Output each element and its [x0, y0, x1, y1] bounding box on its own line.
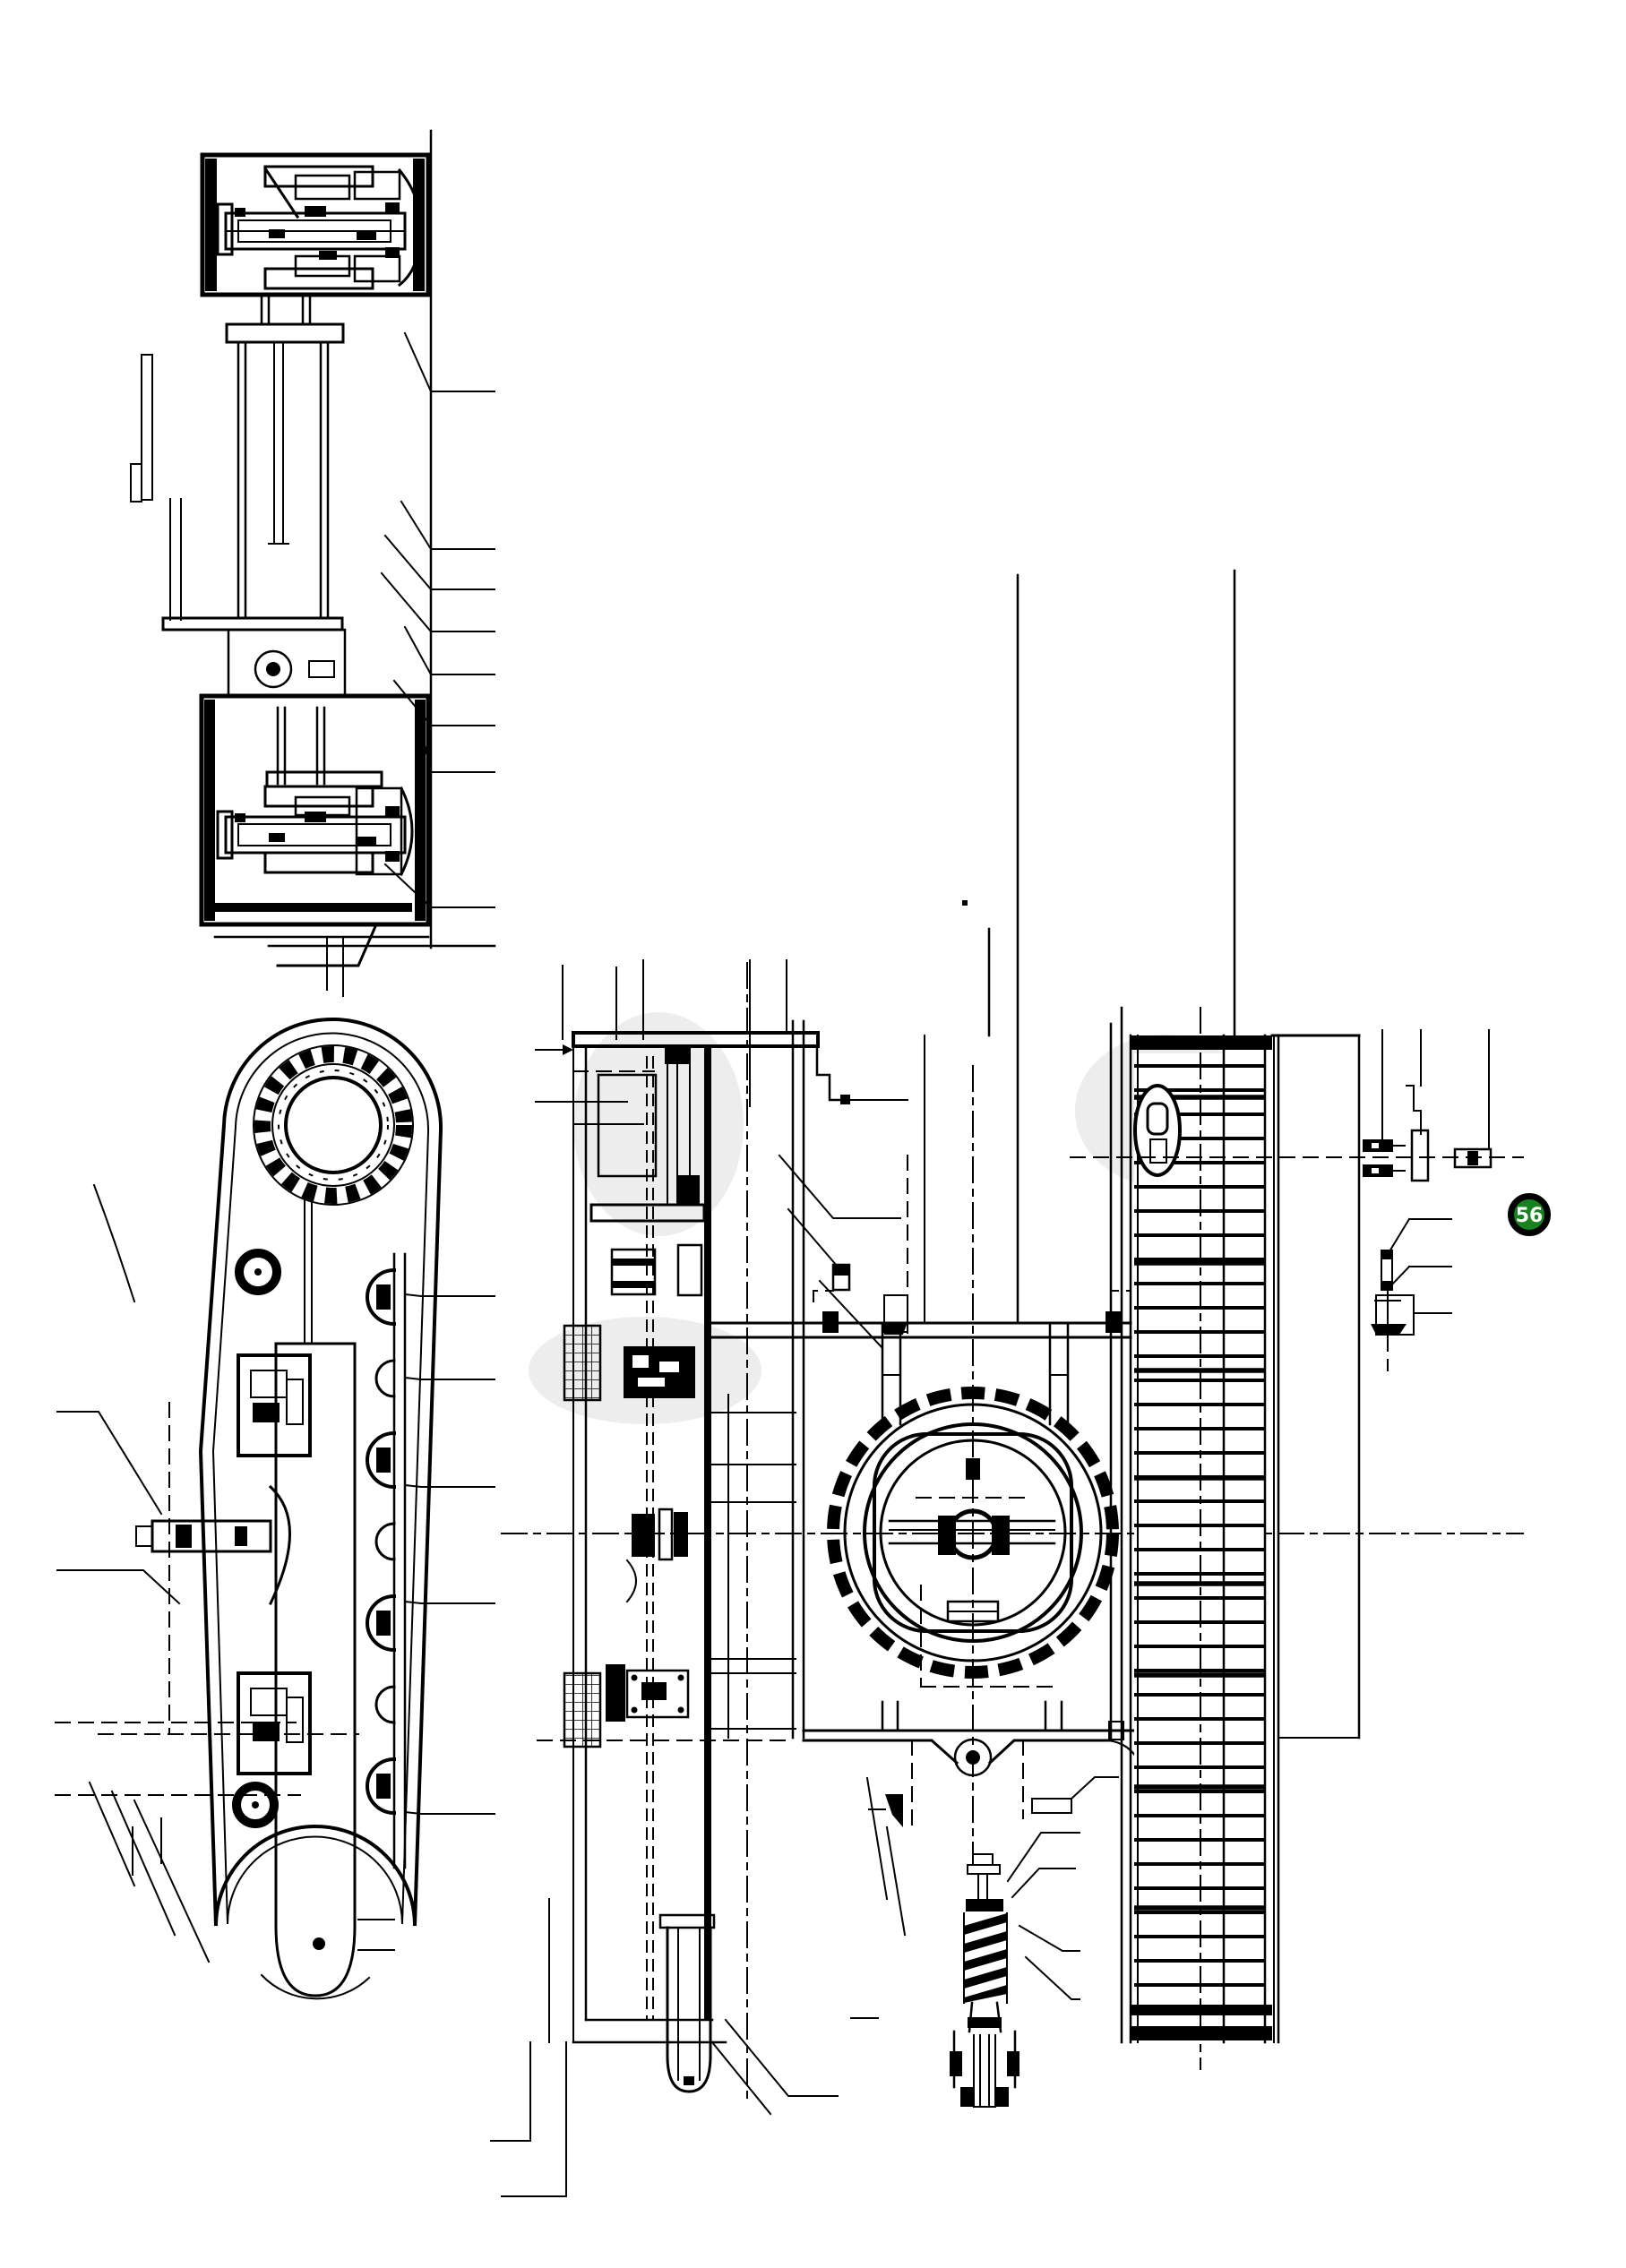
mount-boss-upper [624, 1346, 695, 1398]
drive-sprocket [254, 1045, 413, 1205]
leader-lines-track-right [405, 1294, 495, 1814]
leader-lines-center-right [779, 1155, 908, 1348]
recoil-spring-detail [851, 1740, 1118, 2107]
track-shoe-band [1131, 1008, 1359, 2069]
callout-lines-bottom [491, 1899, 566, 2196]
travel-drive-section-view [131, 131, 495, 996]
mount-column [227, 295, 343, 618]
travel-motor-lower [215, 708, 412, 912]
axle-boss-center [627, 1509, 688, 1602]
badge-number: 56 [1516, 1205, 1544, 1227]
frame-cross-lines [712, 1395, 796, 1738]
frame-bracket-upper [238, 1355, 310, 1456]
track-side-view [56, 1019, 495, 1998]
rail-bottom [804, 1702, 1157, 1827]
part-callout-badge[interactable]: 56 [1511, 1197, 1548, 1233]
leader-lines-section-a [382, 333, 495, 907]
leader-lines-track-left [56, 1185, 358, 1962]
travel-motor-upper [210, 167, 420, 288]
plate-icon [1412, 1130, 1428, 1181]
coil-spring [964, 1913, 1007, 2003]
mount-boss-lower [606, 1664, 688, 1722]
yoke [950, 2032, 1019, 2107]
track-frame [276, 1344, 355, 1996]
technical-drawing-sheet: 56 [0, 0, 1626, 2268]
washer-bolt-icon [1455, 1149, 1491, 1167]
